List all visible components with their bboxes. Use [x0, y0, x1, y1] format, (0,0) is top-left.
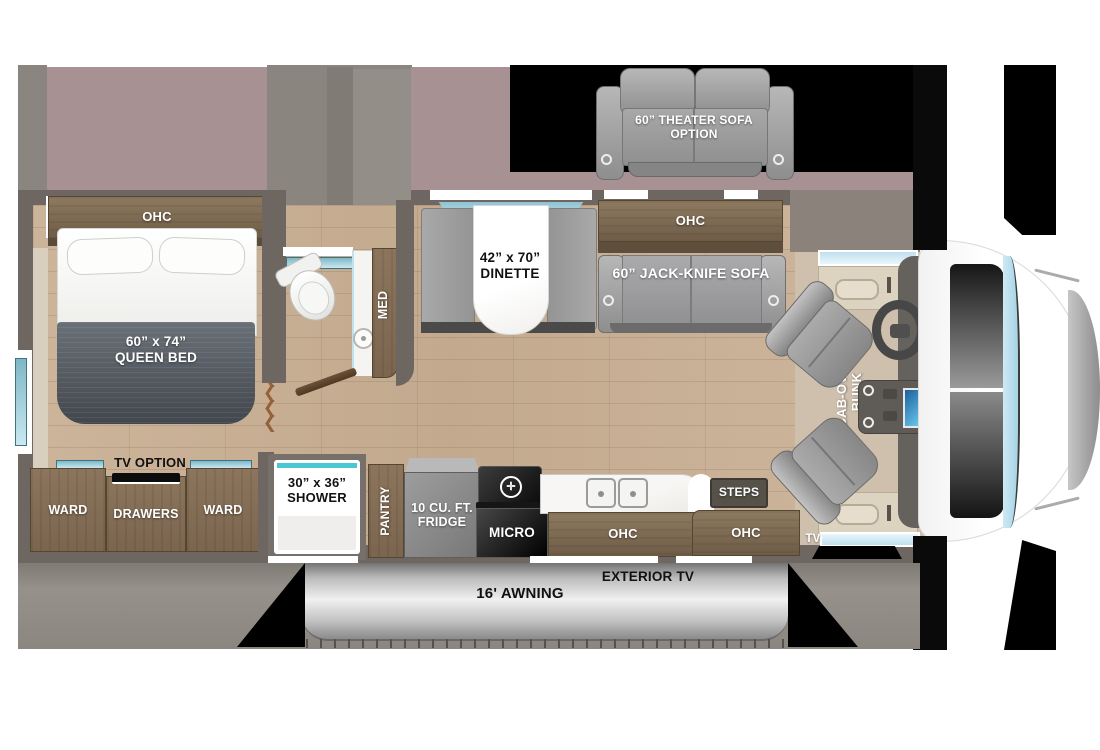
- awning-label: 16' AWNING: [450, 585, 590, 602]
- ward-right-label: WARD: [204, 503, 243, 517]
- wall-gap-1: [268, 556, 358, 563]
- bed-pillow-right: [158, 237, 245, 276]
- shower-label-line1: 30” x 36”: [274, 476, 360, 491]
- dinette-label: 42” x 70” DINETTE: [455, 250, 565, 281]
- front-bumper: [1068, 290, 1100, 490]
- windshield-lower: [950, 392, 1004, 518]
- bed-label-line2: QUEEN BED: [57, 350, 255, 366]
- awning-fringe: [306, 639, 784, 648]
- theater-sofa-bolt-left: [601, 154, 612, 165]
- dinette-label-line2: DINETTE: [455, 266, 565, 282]
- mirror-arm-bottom-outer: [1004, 540, 1056, 650]
- cab-tv-label: TV: [800, 533, 826, 546]
- bath-sink-drain: [361, 336, 366, 341]
- sofa-window-gap2: [724, 190, 758, 199]
- ward-left-cabinet: WARD: [30, 468, 106, 552]
- med-label: MED: [376, 275, 390, 335]
- mirror-arm-top-inner: [913, 65, 947, 250]
- tv-on-drawers: [112, 473, 180, 484]
- wall-gap-2: [530, 556, 658, 563]
- living-ohc-cabinet: OHC: [598, 200, 783, 242]
- fridge-label-line2: FRIDGE: [411, 515, 473, 529]
- microwave: MICRO: [476, 508, 548, 558]
- bed-label: 60” x 74” QUEEN BED: [57, 334, 255, 365]
- queen-bed: 60” x 74” QUEEN BED: [57, 228, 255, 424]
- jackknife-label: 60” JACK-KNIFE SOFA: [598, 265, 784, 281]
- bed-label-line1: 60” x 74”: [57, 334, 255, 350]
- mirror-arm-top-outer: [1004, 65, 1056, 235]
- burner-icon: ✛: [500, 476, 522, 498]
- shower-label-line2: SHOWER: [274, 491, 360, 506]
- rv-floorplan: 60” THEATER SOFA OPTION OHC 60” x 74” QU…: [0, 0, 1100, 750]
- entry-ohc-label: OHC: [731, 526, 761, 541]
- ward-right-cabinet: WARD: [186, 468, 260, 552]
- theater-sofa-bolt-right: [773, 154, 784, 165]
- entry-ohc-cabinet: OHC: [692, 510, 800, 556]
- sofa-window-gap1: [604, 190, 648, 199]
- fridge-body: 10 CU. FT. FRIDGE: [404, 472, 480, 558]
- theater-sofa-label-line1: 60” THEATER SOFA: [622, 114, 766, 128]
- theater-sofa-arm-right: [766, 86, 794, 180]
- cab-tv-wedge: [812, 546, 902, 559]
- console-knob-top: [863, 385, 874, 396]
- shower-step: [278, 516, 356, 550]
- windshield-upper: [950, 264, 1004, 388]
- ward-left-label: WARD: [49, 503, 88, 517]
- jackknife-base: [610, 323, 772, 333]
- windshield-glass-edge: [1003, 256, 1020, 528]
- dinette-window-gap: [430, 190, 592, 200]
- console-vent-1: [883, 389, 897, 399]
- theater-sofa-label: 60” THEATER SOFA OPTION: [622, 114, 766, 142]
- kitchen-sink-left: [586, 478, 616, 508]
- tv-option-label: TV OPTION: [100, 456, 200, 471]
- shower-pan: 30” x 36” SHOWER: [274, 460, 360, 554]
- bunk-bottom-glass: [820, 532, 920, 547]
- shower-label: 30” x 36” SHOWER: [274, 476, 360, 506]
- jackknife-bolt-right: [768, 295, 779, 306]
- exterior-tv-label: EXTERIOR TV: [598, 569, 698, 585]
- jackknife-sofa: 60” JACK-KNIFE SOFA: [598, 253, 784, 335]
- living-ohc-bevel: [598, 242, 783, 253]
- steps-label: STEPS: [719, 486, 759, 500]
- entry-steps: STEPS: [710, 478, 768, 508]
- cab-top-wall: [790, 190, 920, 252]
- micro-label: MICRO: [489, 525, 535, 541]
- pantry-label: PANTRY: [379, 471, 393, 551]
- console-vent-2: [883, 411, 897, 421]
- jackknife-bolt-left: [603, 295, 614, 306]
- dinette-label-line1: 42” x 70”: [455, 250, 565, 266]
- bed-pillow-left: [66, 237, 153, 276]
- console-knob-bottom: [863, 417, 874, 428]
- bedroom-ohc-label: OHC: [142, 210, 172, 225]
- fridge-label-line1: 10 CU. FT.: [411, 501, 473, 515]
- center-console: [858, 380, 926, 434]
- slide-band-gray-left: [18, 65, 47, 190]
- fridge-label: 10 CU. FT. FRIDGE: [411, 501, 473, 530]
- drawers-label: DRAWERS: [113, 507, 178, 521]
- living-ohc-label: OHC: [676, 214, 706, 229]
- kitchen-sink-right: [618, 478, 648, 508]
- kitchen-ohc-label: OHC: [608, 527, 638, 542]
- shower-glass-strip: [277, 463, 357, 468]
- drawers-cabinet: DRAWERS: [106, 476, 186, 552]
- theater-sofa-label-line2: OPTION: [622, 128, 766, 142]
- side-window-glass: [15, 358, 27, 446]
- sofa-slideout-roof: [411, 67, 511, 190]
- steering-hub: [890, 324, 910, 338]
- kitchen-ohc-cabinet: OHC: [548, 512, 698, 557]
- theater-sofa-base: [628, 162, 762, 177]
- wall-gap-3: [676, 556, 752, 563]
- bath-outer-wall: [396, 200, 414, 386]
- bedroom-slideout-roof: [47, 67, 267, 190]
- theater-sofa: 60” THEATER SOFA OPTION: [596, 68, 792, 180]
